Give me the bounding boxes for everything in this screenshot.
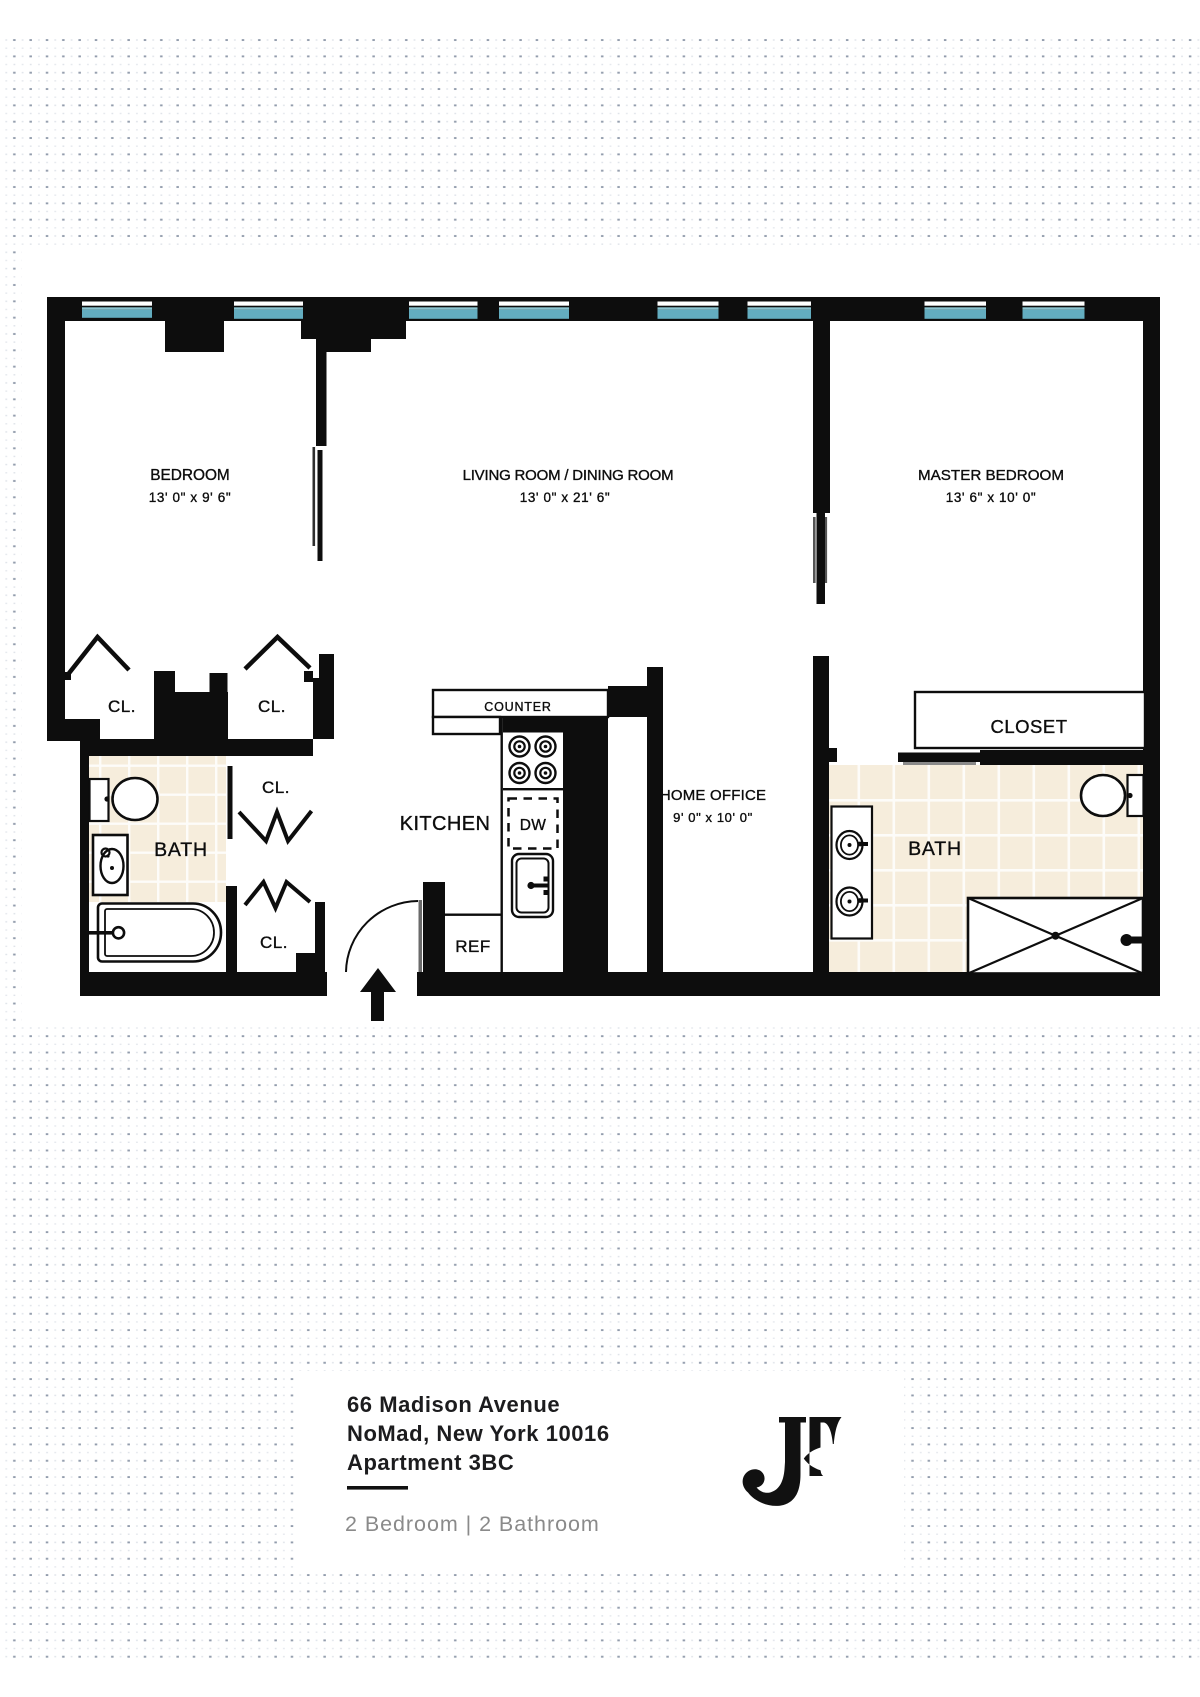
svg-text:MASTER BEDROOM: MASTER BEDROOM	[918, 467, 1064, 484]
svg-text:9' 0" x 10' 0": 9' 0" x 10' 0"	[673, 810, 753, 825]
svg-text:66 Madison Avenue: 66 Madison Avenue	[347, 1392, 560, 1417]
svg-text:13' 6" x 10' 0": 13' 6" x 10' 0"	[946, 490, 1037, 505]
svg-text:LIVING ROOM / DINING ROOM: LIVING ROOM / DINING ROOM	[463, 467, 674, 484]
svg-text:CL.: CL.	[258, 697, 286, 716]
svg-text:BEDROOM: BEDROOM	[150, 467, 230, 484]
svg-text:DW: DW	[520, 817, 546, 834]
svg-text:13' 0" x 21' 6": 13' 0" x 21' 6"	[520, 490, 611, 505]
svg-text:Apartment 3BC: Apartment 3BC	[347, 1450, 514, 1475]
svg-text:2 Bedroom | 2 Bathroom: 2 Bedroom | 2 Bathroom	[345, 1512, 600, 1536]
svg-text:CLOSET: CLOSET	[990, 716, 1067, 737]
svg-text:KITCHEN: KITCHEN	[400, 813, 491, 835]
svg-text:COUNTER: COUNTER	[484, 700, 551, 714]
svg-text:13' 0" x 9' 6": 13' 0" x 9' 6"	[149, 490, 231, 505]
svg-text:BATH: BATH	[154, 839, 208, 861]
svg-text:HOME OFFICE: HOME OFFICE	[660, 787, 766, 804]
svg-text:CL.: CL.	[260, 933, 288, 952]
svg-text:CL.: CL.	[108, 697, 136, 716]
svg-text:REF: REF	[455, 937, 491, 956]
svg-text:CL.: CL.	[262, 778, 290, 797]
svg-text:BATH: BATH	[908, 838, 962, 860]
svg-text:NoMad, New York 10016: NoMad, New York 10016	[347, 1421, 610, 1446]
